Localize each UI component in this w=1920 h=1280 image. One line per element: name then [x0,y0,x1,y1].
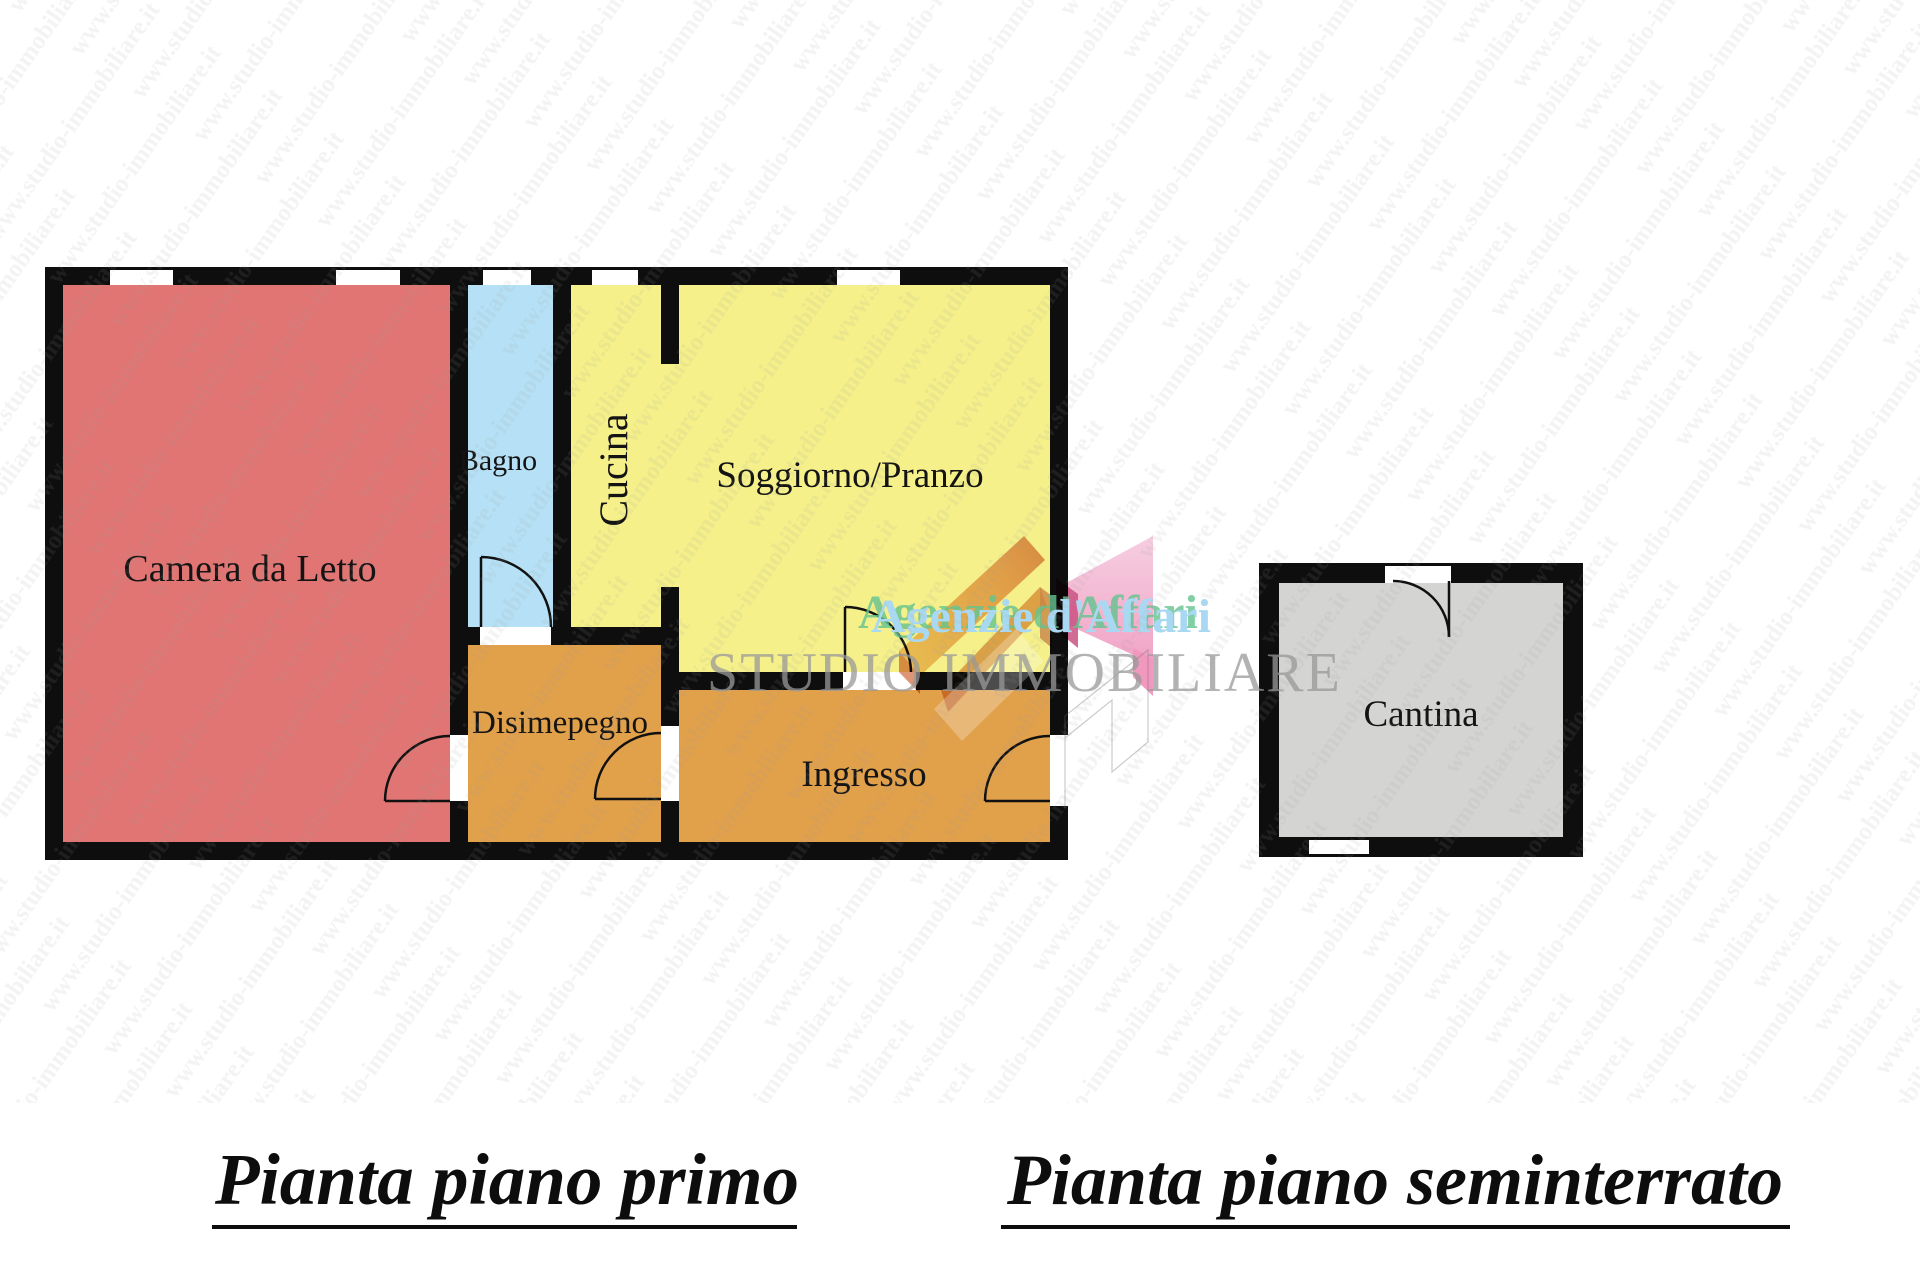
svg-text:Pianta piano seminterrato: Pianta piano seminterrato [1006,1140,1783,1220]
svg-text:Pianta piano primo: Pianta piano primo [214,1139,799,1220]
